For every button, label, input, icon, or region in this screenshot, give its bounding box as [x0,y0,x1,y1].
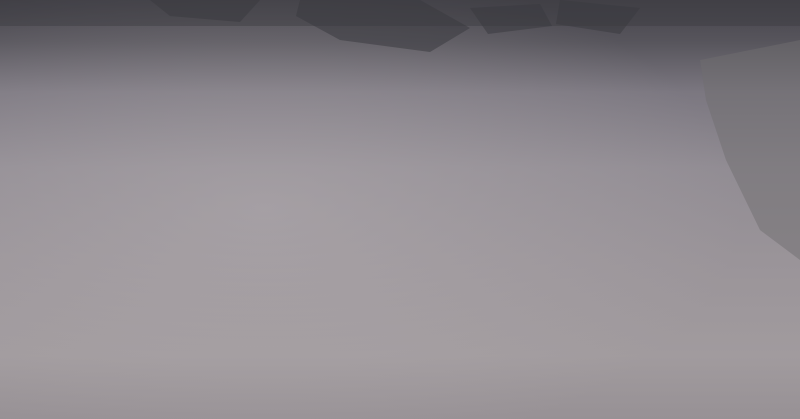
aerial-masterplan-rendering [0,0,800,419]
rendering-stage [0,0,800,419]
ground-layer [0,0,800,419]
